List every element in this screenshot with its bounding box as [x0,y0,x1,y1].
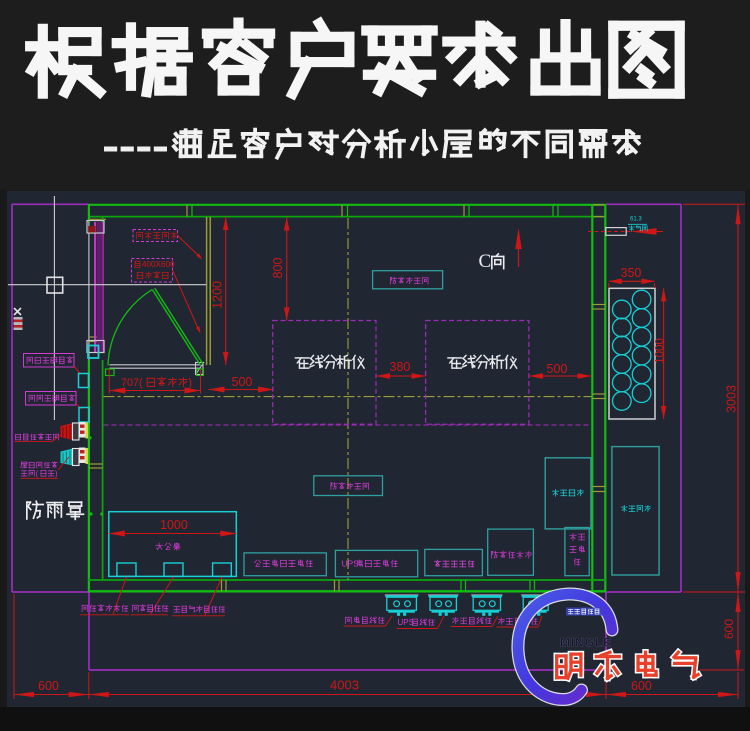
svg-text:500: 500 [547,362,568,376]
svg-text:350: 350 [621,266,642,280]
svg-text:UPS: UPS [398,618,414,627]
svg-text:4003: 4003 [330,678,359,693]
svg-text:380: 380 [390,360,411,374]
svg-text:1200: 1200 [210,281,224,309]
svg-text:600: 600 [722,619,736,639]
svg-text:C: C [479,251,492,272]
svg-text:61.3: 61.3 [630,217,642,223]
svg-text:): ) [55,469,57,478]
svg-text:400X600: 400X600 [142,260,175,269]
svg-text:MINGLE: MINGLE [560,636,612,650]
svg-text:800: 800 [271,258,285,279]
svg-text:500: 500 [232,375,253,389]
svg-text:3003: 3003 [724,385,738,413]
svg-text:1000: 1000 [160,518,188,532]
svg-text:): ) [188,377,192,389]
svg-text:UPS: UPS [342,558,360,568]
svg-text:707(: 707( [121,377,143,389]
svg-text:600: 600 [38,679,59,693]
svg-text:1000: 1000 [655,338,667,364]
svg-text:600: 600 [631,679,652,693]
